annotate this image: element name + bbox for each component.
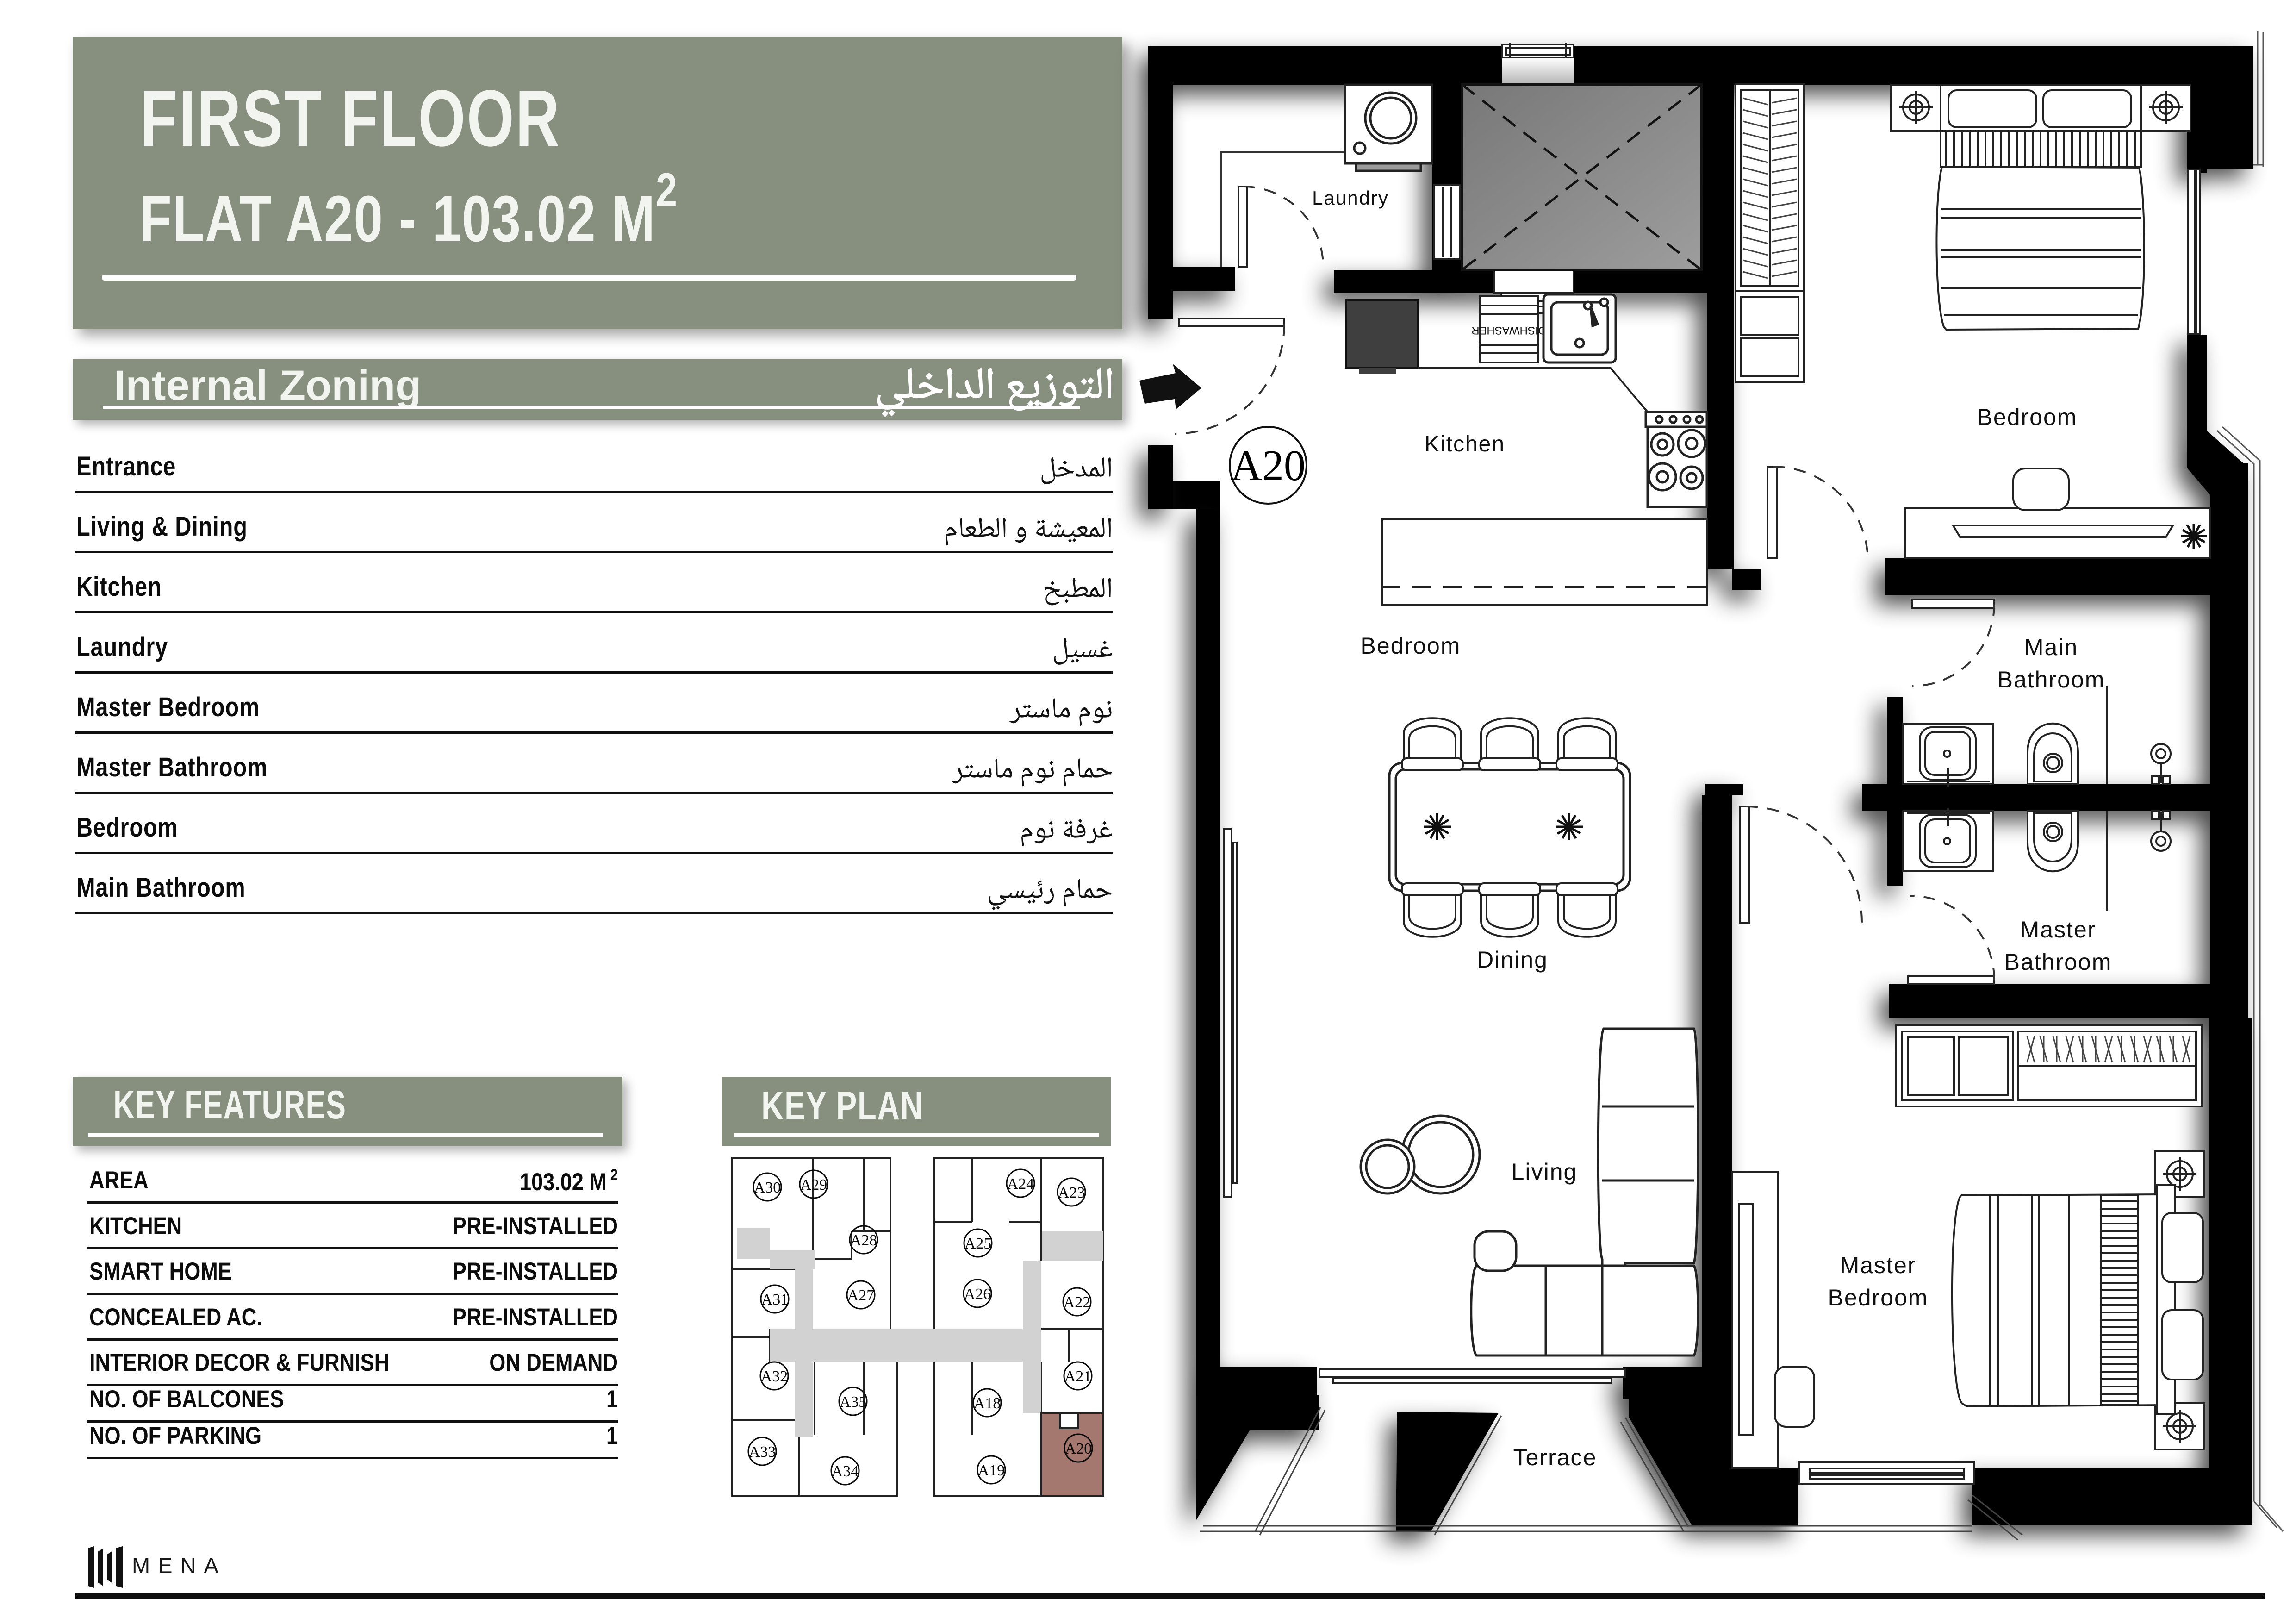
svg-text:Kitchen: Kitchen bbox=[1425, 432, 1505, 456]
svg-text:Dining: Dining bbox=[1477, 947, 1548, 973]
svg-text:Bathroom: Bathroom bbox=[2004, 949, 2112, 975]
svg-text:Living: Living bbox=[1512, 1159, 1578, 1185]
svg-text:A29: A29 bbox=[800, 1176, 828, 1193]
svg-text:A28: A28 bbox=[850, 1232, 877, 1249]
svg-text:A24: A24 bbox=[1007, 1175, 1034, 1193]
svg-text:A18: A18 bbox=[974, 1395, 1001, 1412]
svg-text:Bathroom: Bathroom bbox=[1997, 667, 2105, 693]
svg-text:A30: A30 bbox=[754, 1179, 781, 1196]
svg-text:A34: A34 bbox=[832, 1463, 859, 1480]
svg-text:Bedroom: Bedroom bbox=[1828, 1285, 1929, 1311]
svg-text:Master: Master bbox=[1840, 1252, 1916, 1278]
svg-text:A20: A20 bbox=[1231, 442, 1306, 490]
svg-text:A20: A20 bbox=[1065, 1440, 1092, 1457]
svg-text:A23: A23 bbox=[1058, 1184, 1085, 1201]
svg-text:Bedroom: Bedroom bbox=[1977, 404, 2078, 430]
svg-text:A27: A27 bbox=[847, 1287, 875, 1304]
svg-text:Bedroom: Bedroom bbox=[1361, 633, 1461, 659]
svg-text:Laundry: Laundry bbox=[1312, 187, 1389, 209]
svg-text:A21: A21 bbox=[1064, 1368, 1092, 1385]
svg-text:A35: A35 bbox=[840, 1393, 867, 1411]
svg-text:A31: A31 bbox=[761, 1291, 789, 1308]
svg-text:A32: A32 bbox=[761, 1368, 788, 1385]
svg-text:A33: A33 bbox=[749, 1443, 776, 1461]
svg-text:A22: A22 bbox=[1064, 1294, 1091, 1311]
svg-text:A25: A25 bbox=[964, 1235, 992, 1252]
svg-text:KEY PLAN: KEY PLAN bbox=[761, 1084, 923, 1128]
svg-text:Master: Master bbox=[2020, 917, 2097, 943]
svg-text:DISHWASHER: DISHWASHER bbox=[1471, 324, 1546, 337]
svg-text:Terrace: Terrace bbox=[1513, 1444, 1597, 1470]
svg-text:A19: A19 bbox=[978, 1462, 1005, 1479]
svg-text:Main: Main bbox=[2024, 634, 2078, 660]
svg-text:A26: A26 bbox=[964, 1286, 991, 1303]
